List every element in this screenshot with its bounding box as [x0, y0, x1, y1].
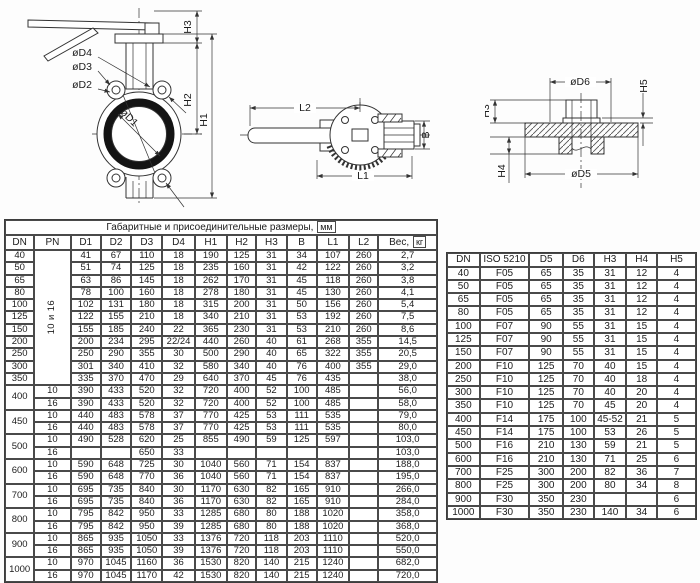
table-cell: 210	[227, 311, 256, 323]
table-cell: 15	[626, 333, 657, 346]
dim-label-h5: H5	[638, 79, 650, 93]
table-cell: 200	[227, 299, 256, 311]
table-cell: 970	[71, 570, 101, 582]
table-cell: 640	[195, 373, 227, 385]
table-cell: 910	[317, 484, 349, 496]
table-cell: 40	[256, 361, 286, 373]
table-cell: 1050	[131, 533, 162, 545]
table-cell: 340	[195, 311, 227, 323]
table-cell: 900	[447, 493, 480, 506]
table-cell: 10	[34, 484, 70, 496]
table-cell: 600	[5, 459, 34, 484]
table-cell: 720	[195, 385, 227, 397]
table-cell: 90	[529, 320, 563, 333]
table-cell: 65	[529, 293, 563, 306]
unit-mm: мм	[317, 221, 335, 233]
table-cell: 260	[227, 336, 256, 348]
table-cell: 80	[447, 306, 480, 319]
table-cell: 268	[317, 336, 349, 348]
table-cell: 260	[349, 250, 378, 262]
table-cell: 440	[195, 336, 227, 348]
table-cell: 26	[626, 426, 657, 439]
table-cell: 25	[162, 434, 194, 446]
table-cell: 483	[101, 422, 131, 434]
table-cell: F10	[480, 360, 530, 373]
table-cell	[349, 398, 378, 410]
table-cell: 125	[529, 360, 563, 373]
table-cell: 52	[256, 385, 286, 397]
table-cell: 53	[256, 410, 286, 422]
table-cell: 400	[227, 385, 256, 397]
table-title: Габаритные и присоединительные размеры, …	[5, 220, 437, 235]
table-cell: 210	[529, 439, 563, 452]
table-cell: 31	[256, 262, 286, 274]
table-cell: 278	[195, 287, 227, 299]
table-row: 1665033103,0	[5, 447, 437, 459]
table-cell: 450	[447, 426, 480, 439]
table-cell: F05	[480, 293, 530, 306]
table-cell: 36	[626, 466, 657, 479]
table-cell: 520	[131, 385, 162, 397]
table-cell: 35	[563, 306, 594, 319]
table-cell: 150	[447, 346, 480, 359]
table-cell: 195,0	[378, 471, 437, 483]
table-cell: 53	[594, 426, 627, 439]
table-cell: 40	[594, 386, 627, 399]
table-cell: 1376	[195, 533, 227, 545]
table-cell: 578	[131, 422, 162, 434]
table-cell: 470	[131, 373, 162, 385]
main-dimensions-table: Габаритные и присоединительные размеры, …	[4, 219, 438, 583]
table-cell: 37	[162, 422, 194, 434]
dim-label-h3-flange: H3	[485, 104, 492, 118]
table-cell: 14,5	[378, 336, 437, 348]
table-cell: 71	[594, 453, 627, 466]
table-cell: 71	[256, 471, 286, 483]
table-cell: 1530	[195, 557, 227, 569]
table-row: 65F05653531124	[447, 293, 696, 306]
table-cell: 2,7	[378, 250, 437, 262]
table-cell: 10	[34, 508, 70, 520]
table-cell: 1160	[131, 557, 162, 569]
table-cell: 36	[162, 471, 194, 483]
table-row: 9001086593510503313767201182031110520,0	[5, 533, 437, 545]
table-cell: 390	[71, 398, 101, 410]
table-cell: 4	[657, 280, 696, 293]
table-cell: 3,2	[378, 262, 437, 274]
table-cell: 155	[101, 311, 131, 323]
table-cell: 154	[287, 471, 317, 483]
table-cell: 71	[256, 459, 286, 471]
table-cell: 110	[131, 250, 162, 262]
table-cell: 31	[594, 306, 627, 319]
table-cell: 580	[195, 361, 227, 373]
table-cell: 31	[256, 299, 286, 311]
table-cell: 1040	[195, 471, 227, 483]
table-cell: 597	[317, 434, 349, 446]
table-cell: 260	[349, 287, 378, 299]
table-cell	[349, 373, 378, 385]
table-cell: 50	[5, 262, 34, 274]
table-cell: 680	[227, 508, 256, 520]
table-cell: 1170	[195, 496, 227, 508]
table-row: 6563861451826217031451182603,8	[5, 275, 437, 287]
table-cell: 440	[71, 422, 101, 434]
col-header-d6: D6	[563, 253, 594, 267]
table-cell: 100	[563, 426, 594, 439]
table-cell: 590	[71, 459, 101, 471]
table-cell: 837	[317, 471, 349, 483]
table-cell: 107	[317, 250, 349, 262]
table-cell: 67	[101, 250, 131, 262]
table-cell: 192	[317, 311, 349, 323]
table-cell: 39	[162, 545, 194, 557]
table-cell: 7,5	[378, 311, 437, 323]
table-cell: 76	[287, 361, 317, 373]
table-row: 1669573584036117063082165910284,0	[5, 496, 437, 508]
table-cell: F10	[480, 373, 530, 386]
table-cell: 203	[287, 533, 317, 545]
table-cell: 25	[626, 453, 657, 466]
dim-label-h2: H2	[182, 93, 194, 107]
table-cell: 865	[71, 533, 101, 545]
table-cell: 200	[71, 336, 101, 348]
table-cell: 42	[287, 262, 317, 274]
table-cell: 215	[287, 570, 317, 582]
table-cell: 301	[71, 361, 101, 373]
table-cell: 22/24	[162, 336, 194, 348]
dim-label-h3: H3	[182, 20, 194, 34]
table-cell: 10	[34, 557, 70, 569]
table-cell: 33	[162, 508, 194, 520]
table-cell: F16	[480, 453, 530, 466]
table-cell: 185	[101, 324, 131, 336]
table-cell: 118	[256, 545, 286, 557]
table-cell: 29	[162, 373, 194, 385]
col-header-d4: D4	[162, 235, 194, 250]
table-cell: 102	[71, 299, 101, 311]
table-cell: 700	[447, 466, 480, 479]
table-cell: 355	[349, 336, 378, 348]
table-cell: 31	[594, 333, 627, 346]
table-cell: 82	[256, 484, 286, 496]
table-cell: 260	[349, 299, 378, 311]
table-row: 125F07905531154	[447, 333, 696, 346]
table-cell: 4	[657, 386, 696, 399]
table-cell: 160	[227, 262, 256, 274]
table-cell: 31	[594, 320, 627, 333]
table-cell: F05	[480, 280, 530, 293]
table-cell: F07	[480, 333, 530, 346]
table-cell: 1110	[317, 545, 349, 557]
table-cell: 125	[5, 311, 34, 323]
table-cell	[349, 557, 378, 569]
col-header-d3: D3	[131, 235, 162, 250]
table-cell: 433	[101, 398, 131, 410]
table-cell: 800	[5, 508, 34, 533]
table-cell: 34	[287, 250, 317, 262]
table-row: 900F303502306	[447, 493, 696, 506]
table-row: 700F2530020082367	[447, 466, 696, 479]
col-header-d5: D5	[529, 253, 563, 267]
table-cell: 125	[227, 250, 256, 262]
table-cell: 42	[162, 570, 194, 582]
unit-kg: кг	[413, 236, 426, 248]
table-cell: 103,0	[378, 447, 437, 459]
table-cell: 61	[287, 336, 317, 348]
table-cell: 188,0	[378, 459, 437, 471]
col-header-dn: DN	[447, 253, 480, 267]
table-cell: 900	[5, 533, 34, 558]
table-cell: 59	[256, 434, 286, 446]
table-cell: 350	[5, 373, 34, 385]
table-cell: F25	[480, 466, 530, 479]
table-cell	[349, 459, 378, 471]
table-cell	[349, 533, 378, 545]
table-cell: 500	[195, 348, 227, 360]
table-cell: 322	[317, 348, 349, 360]
table-cell: 865	[71, 545, 101, 557]
table-cell: 59	[594, 439, 627, 452]
table-row: 200F101257040154	[447, 360, 696, 373]
dim-label-d4: øD4	[72, 47, 92, 59]
iso-table-body: 40F0565353112450F0565353112465F056535311…	[447, 267, 696, 520]
col-header-b: B	[287, 235, 317, 250]
table-cell: 188	[287, 508, 317, 520]
table-cell: 290	[227, 348, 256, 360]
table-cell: 1045	[101, 557, 131, 569]
table-cell: 720	[195, 398, 227, 410]
table-row: 800F2530020080348	[447, 479, 696, 492]
table-cell: 300	[529, 466, 563, 479]
table-cell: F07	[480, 346, 530, 359]
table-cell: 535	[317, 422, 349, 434]
table-cell: 820	[227, 570, 256, 582]
table-cell: 18	[162, 287, 194, 299]
dim-label-d3: øD3	[72, 61, 92, 73]
table-cell: 1530	[195, 570, 227, 582]
table-cell: 935	[101, 533, 131, 545]
table-cell: 30	[162, 459, 194, 471]
table-cell: 80	[5, 287, 34, 299]
table-cell: 720	[227, 545, 256, 557]
table-cell	[349, 570, 378, 582]
table-cell: 21	[626, 413, 657, 426]
table-cell: 4	[657, 399, 696, 412]
table-cell: 4	[657, 373, 696, 386]
table-cell: 50	[447, 280, 480, 293]
col-header-h5: H5	[657, 253, 696, 267]
table-row: 1001021311801831520031501562605,4	[5, 299, 437, 311]
table-cell: 260	[349, 275, 378, 287]
dim-label-h4: H4	[496, 164, 508, 178]
table-cell: 210	[317, 324, 349, 336]
table-cell: 16	[34, 545, 70, 557]
table-cell: 22	[162, 324, 194, 336]
table-title-row: Габаритные и присоединительные размеры, …	[5, 220, 437, 235]
dim-label-b: B	[420, 131, 432, 138]
table-cell: 31	[256, 311, 286, 323]
col-header-h1: H1	[195, 235, 227, 250]
table-cell: 145	[131, 275, 162, 287]
table-cell: 31	[256, 250, 286, 262]
table-cell: 560	[227, 459, 256, 471]
table-cell: 103,0	[378, 434, 437, 446]
table-cell: 4	[657, 267, 696, 280]
table-cell: 5	[657, 413, 696, 426]
table-cell: 200	[563, 466, 594, 479]
table-cell: 122	[71, 311, 101, 323]
table-cell: 1040	[195, 459, 227, 471]
valve-top-view-drawing: L2 L1 B	[232, 58, 437, 203]
table-cell: 315	[195, 299, 227, 311]
table-cell: 35	[563, 280, 594, 293]
col-header-dn: DN	[5, 235, 34, 250]
table-cell: 130	[563, 453, 594, 466]
table-cell	[195, 447, 227, 459]
table-cell: 37	[162, 410, 194, 422]
table-cell: 650	[131, 447, 162, 459]
table-cell: 65	[5, 275, 34, 287]
table-cell: 4	[657, 293, 696, 306]
table-cell: 35	[563, 293, 594, 306]
table-cell: F30	[480, 493, 530, 506]
table-cell: 16	[34, 570, 70, 582]
table-cell: 260	[349, 311, 378, 323]
table-cell	[349, 447, 378, 459]
table-cell: 175	[529, 413, 563, 426]
table-cell: 41	[71, 250, 101, 262]
table-row: 100010970104511603615308201402151240682,…	[5, 557, 437, 569]
table-cell: 4	[657, 346, 696, 359]
table-cell: 520	[131, 398, 162, 410]
table-cell: 358,0	[378, 508, 437, 520]
table-cell: 368,0	[378, 521, 437, 533]
table-cell: 648	[101, 471, 131, 483]
table-row: 5051741251823516031421222603,2	[5, 262, 437, 274]
table-cell: 340	[227, 361, 256, 373]
table-cell: 842	[101, 521, 131, 533]
table-cell	[594, 493, 627, 506]
table-cell: 18	[162, 262, 194, 274]
dim-label-l1: L1	[357, 170, 369, 182]
table-cell: 250	[447, 373, 480, 386]
table-cell: 21	[626, 439, 657, 452]
table-cell: 230	[563, 493, 594, 506]
table-cell: 15	[626, 346, 657, 359]
table-cell: 300	[5, 361, 34, 373]
table-cell: 31	[594, 346, 627, 359]
table-row: 150F07905531154	[447, 346, 696, 359]
table-cell: 100	[287, 398, 317, 410]
table-row: 45010440483578377704255311153579,0	[5, 410, 437, 422]
table-cell: 16	[34, 398, 70, 410]
table-cell: 20	[626, 386, 657, 399]
table-row: 600F1621013071256	[447, 453, 696, 466]
table-cell: 840	[131, 496, 162, 508]
table-row: 350F101257045204	[447, 399, 696, 412]
table-cell: 15	[626, 360, 657, 373]
table-cell: 55	[563, 346, 594, 359]
table-row: 1501551852402236523031532102608,6	[5, 324, 437, 336]
table-cell: 56,0	[378, 385, 437, 397]
table-cell: 590	[71, 471, 101, 483]
table-cell	[101, 447, 131, 459]
table-cell: 130	[563, 439, 594, 452]
table-cell: 70	[563, 373, 594, 386]
table-cell: 34	[626, 479, 657, 492]
table-cell: 150	[5, 324, 34, 336]
table-cell	[287, 447, 317, 459]
table-cell: 400	[447, 413, 480, 426]
table-cell: 725	[131, 459, 162, 471]
table-cell: 55	[563, 333, 594, 346]
table-cell: 82	[256, 496, 286, 508]
table-cell	[349, 410, 378, 422]
table-cell: 200	[447, 360, 480, 373]
table-cell: 490	[227, 434, 256, 446]
table-cell: 78	[71, 287, 101, 299]
table-cell: 1110	[317, 533, 349, 545]
table-cell: 6	[657, 453, 696, 466]
table-cell: 31	[594, 267, 627, 280]
table-cell: 79,0	[378, 410, 437, 422]
table-cell: 180	[131, 299, 162, 311]
col-header-l2: L2	[349, 235, 378, 250]
col-header-h4: H4	[626, 253, 657, 267]
table-cell: 485	[317, 385, 349, 397]
table-cell: 165	[287, 484, 317, 496]
table-cell: 490	[71, 434, 101, 446]
table-cell: 10	[34, 459, 70, 471]
table-row: 500F1621013059215	[447, 439, 696, 452]
main-table-body: 4010 и 1641671101819012531341072602,7505…	[5, 250, 437, 582]
table-cell: 950	[131, 521, 162, 533]
table-cell: F07	[480, 320, 530, 333]
table-cell: 10	[34, 385, 70, 397]
table-cell	[626, 493, 657, 506]
col-header-h3: H3	[256, 235, 286, 250]
table-cell: 80	[594, 479, 627, 492]
table-cell: 535	[317, 410, 349, 422]
table-row: 450F1417510053265	[447, 426, 696, 439]
col-header-d2: D2	[101, 235, 131, 250]
table-cell: 735	[101, 496, 131, 508]
table-cell: 74	[101, 262, 131, 274]
table-cell: 295	[131, 336, 162, 348]
table-cell: 10	[34, 434, 70, 446]
table-cell: 350	[529, 493, 563, 506]
table-cell: 18	[162, 311, 194, 323]
table-cell: 31	[256, 324, 286, 336]
table-cell: 65	[287, 348, 317, 360]
table-cell: 840	[131, 484, 162, 496]
table-cell: 440	[71, 410, 101, 422]
table-cell: 250	[71, 348, 101, 360]
table-cell: 80,0	[378, 422, 437, 434]
table-cell: 400	[227, 398, 256, 410]
table-cell: 32	[162, 361, 194, 373]
table-cell: 155	[71, 324, 101, 336]
table-cell: 230	[227, 324, 256, 336]
table-cell: 125	[131, 262, 162, 274]
table-cell: 1376	[195, 545, 227, 557]
table-cell: 500	[447, 439, 480, 452]
table-cell: 355	[349, 361, 378, 373]
table-cell: 425	[227, 422, 256, 434]
table-cell: F16	[480, 439, 530, 452]
table-cell: 125	[529, 373, 563, 386]
